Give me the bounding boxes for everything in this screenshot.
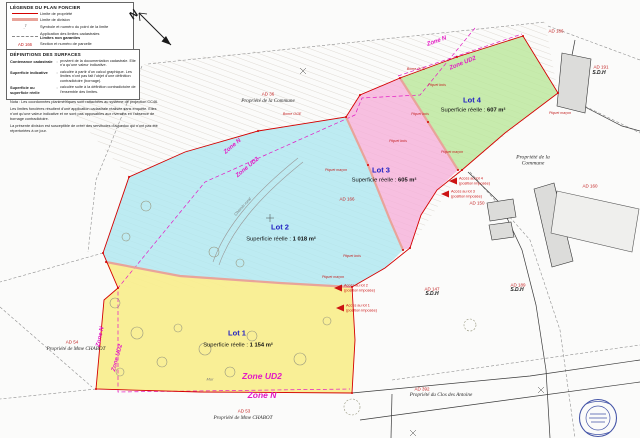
stake-label: Piquet bois [343, 254, 361, 258]
parcel-owner: Propriété de Mme CHABOT [213, 416, 272, 422]
stake-label: Piquet maçon [549, 111, 571, 115]
lot4-area: Superficie réelle : 607 m² [441, 108, 506, 115]
legend-row: ·7 Symbole et numéro du point de la limi… [10, 24, 130, 30]
definition-row: Superficie indicative : calculée à parti… [10, 70, 136, 84]
parcel-owner: S.D.H [425, 292, 438, 298]
parcel-code: AD 191 [593, 64, 608, 69]
parcel-owner: S.D.H [592, 71, 605, 77]
legend-label: Limite de propriété [40, 12, 72, 16]
lot3-title: Lot 3 [372, 167, 390, 176]
parcel-code: AD 54 [66, 339, 79, 344]
property-limit-swatch [12, 13, 38, 14]
wall-label: Mur [207, 378, 214, 383]
access-note-lot1: Accès au lot 1(position imposée) [346, 303, 377, 312]
lot1-area: Superficie réelle : 1 154 m² [203, 343, 273, 350]
legend-row: Application des limites cadastralesLimit… [10, 32, 130, 41]
legend-label: Section et numéro de parcelle [40, 42, 92, 46]
definition-term: Contenance cadastrale [10, 59, 54, 68]
definition-row: Superficie ou superficie réelle : calcul… [10, 85, 136, 95]
lot3-area: Superficie réelle : 605 m² [352, 178, 417, 185]
legend-label: Limite de division [40, 18, 70, 22]
point-symbol-swatch: ·7 [23, 24, 26, 30]
parcel-code: AD 392 [414, 386, 429, 391]
parcel-owner: Propriété de Mme CHABOT [46, 347, 105, 353]
definition-text: calculée suite à la définition contradic… [60, 85, 136, 95]
parcel-code: AD 166 [339, 196, 354, 201]
definitions-title: DÉFINITIONS DES SURFACES [10, 52, 136, 57]
stake-label: Piquet maçon [325, 168, 347, 172]
parcel-owner: S.D.H [510, 288, 523, 294]
definitions-box: DÉFINITIONS DES SURFACES Contenance cada… [6, 49, 140, 100]
stake-label: Piquet maçon [322, 275, 344, 279]
definition-text: provient de la documentation cadastrale.… [60, 59, 136, 68]
stake-label: Borne OGE [407, 67, 426, 71]
parcel-code: AD 150 [469, 200, 484, 205]
nota-paragraph: Les limites foncières résultent d'une ap… [10, 107, 162, 121]
stake-label: Borne OGE [283, 112, 302, 116]
cadastral-line [0, 253, 103, 282]
zone-label: Zone N [248, 391, 277, 401]
legend-row: Limite de propriété [10, 12, 130, 16]
access-note-lot3: Accès au lot 3(position imposée) [451, 189, 482, 198]
nota-paragraph: La présente division est susceptible de … [10, 124, 162, 133]
parcel-owner: Propriété de la Commune [505, 155, 561, 168]
surveyor-stamp-icon [580, 400, 617, 437]
plan-foncier: LÉGENDE DU PLAN FONCIER Limite de propri… [0, 0, 640, 438]
cadastral-line [392, 345, 640, 380]
access-note-lot2: Accès au lot 2(position imposée) [344, 283, 375, 292]
building [489, 222, 514, 240]
definition-row: Contenance cadastrale : provient de la d… [10, 59, 136, 68]
legend-box: LÉGENDE DU PLAN FONCIER Limite de propri… [6, 2, 134, 52]
legend-row: AD 166 Section et numéro de parcelle [10, 42, 130, 47]
parcel-code-swatch: AD 166 [18, 42, 32, 47]
nota-paragraph: Nota : Les coordonnées planimétriques so… [10, 100, 162, 105]
parcel-owner: Propriété de la Commune [241, 99, 295, 105]
definition-term: Superficie indicative [10, 70, 54, 84]
parcel-code: AD 160 [582, 183, 597, 188]
nota-block: Nota : Les coordonnées planimétriques so… [10, 100, 162, 136]
lot2-area: Superficie réelle : 1 018 m² [246, 237, 316, 244]
lot4-title: Lot 4 [463, 97, 481, 106]
stake-label: Piquet bois [428, 83, 446, 87]
parcel-code: AD 36 [262, 91, 275, 96]
road-line [391, 394, 392, 438]
definition-term: Superficie ou superficie réelle [10, 85, 54, 95]
cadastral-line [0, 389, 96, 399]
legend-row: Limite de division [10, 18, 130, 22]
building [487, 199, 516, 221]
legend-title: LÉGENDE DU PLAN FONCIER [10, 5, 130, 10]
parcel-code: AD 53 [238, 408, 251, 413]
building [557, 53, 591, 113]
zone-label: Zone UD2 [242, 372, 282, 382]
parcel-code: AD 186 [548, 28, 563, 33]
north-arrow-icon [139, 13, 171, 45]
stake-label: Piquet bois [411, 112, 429, 116]
legend-label: Symbole et numéro du point de la limite [40, 25, 108, 29]
definition-text: calculée à partir d'un calcul graphique.… [60, 70, 136, 84]
lot2-title: Lot 2 [271, 224, 289, 233]
legend-label-bold: Limites non garanties [40, 36, 99, 40]
stake-label: Piquet bois [389, 139, 407, 143]
stake-label: Piquet maçon [441, 150, 463, 154]
parcel-owner: Propriété du Clos des Antoine [410, 393, 473, 399]
division-limit-swatch [12, 18, 38, 21]
lot1-title: Lot 1 [228, 330, 246, 339]
access-note-lot4: Accès au lot 4(position imposée) [459, 176, 490, 185]
cadastral-limit-swatch [12, 36, 38, 37]
